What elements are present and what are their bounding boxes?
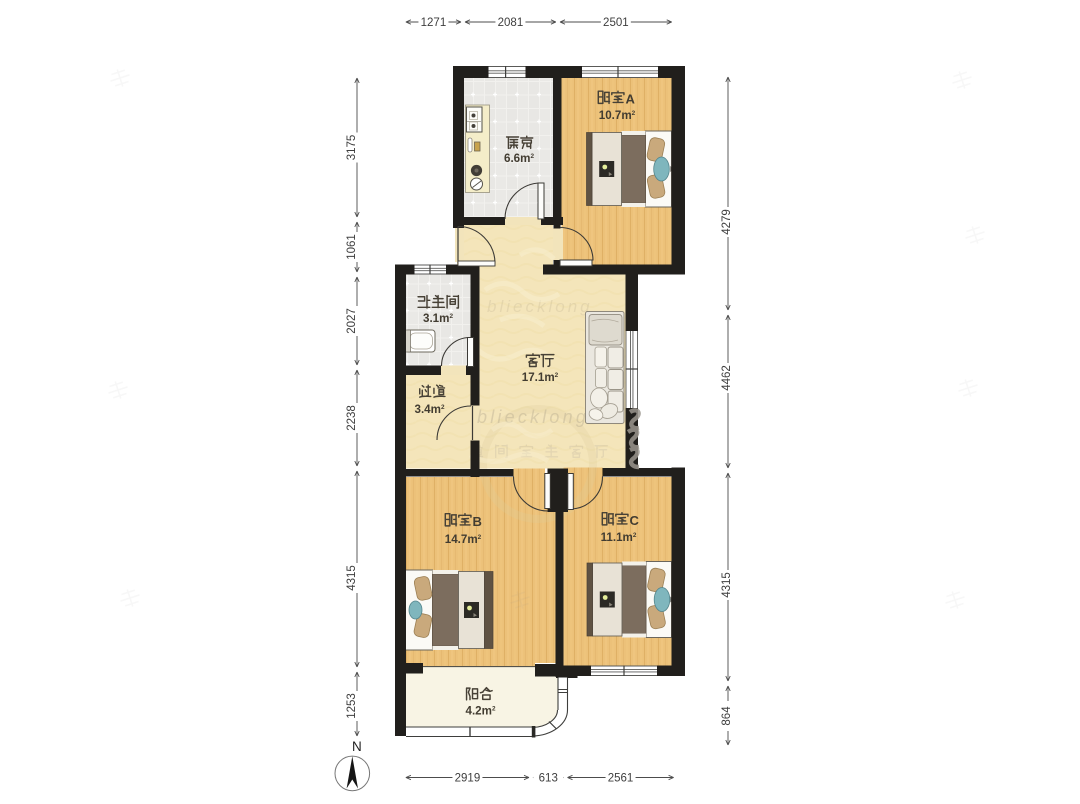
svg-text:4279: 4279 [721, 209, 733, 235]
svg-text:613: 613 [539, 773, 558, 785]
svg-text:2238: 2238 [346, 405, 358, 431]
svg-text:2561: 2561 [608, 773, 634, 785]
svg-text:2501: 2501 [603, 17, 629, 29]
svg-text:2081: 2081 [498, 17, 524, 29]
svg-text:14.7m2: 14.7m2 [445, 533, 482, 546]
svg-text:17.1m2: 17.1m2 [522, 371, 559, 384]
svg-text:B: B [473, 514, 482, 529]
svg-text:4.2m2: 4.2m2 [466, 705, 496, 718]
svg-text:2027: 2027 [346, 308, 358, 334]
svg-text:N: N [352, 739, 362, 754]
svg-text:4462: 4462 [721, 365, 733, 391]
svg-text:864: 864 [721, 706, 733, 726]
svg-text:bliecklong: bliecklong [477, 407, 589, 427]
svg-text:3175: 3175 [346, 135, 358, 161]
svg-text:4315: 4315 [721, 572, 733, 598]
svg-text:1253: 1253 [346, 693, 358, 719]
svg-text:3.4m2: 3.4m2 [415, 403, 445, 416]
svg-text:10.7m2: 10.7m2 [599, 109, 636, 122]
svg-text:1061: 1061 [346, 234, 358, 260]
svg-text:6.6m2: 6.6m2 [504, 152, 534, 165]
svg-text:1271: 1271 [421, 17, 447, 29]
svg-text:A: A [626, 92, 636, 107]
svg-text:11.1m2: 11.1m2 [601, 531, 637, 544]
svg-text:4315: 4315 [346, 565, 358, 591]
svg-text:2919: 2919 [455, 773, 481, 785]
svg-text:C: C [630, 513, 640, 528]
svg-text:3.1m2: 3.1m2 [423, 312, 453, 325]
